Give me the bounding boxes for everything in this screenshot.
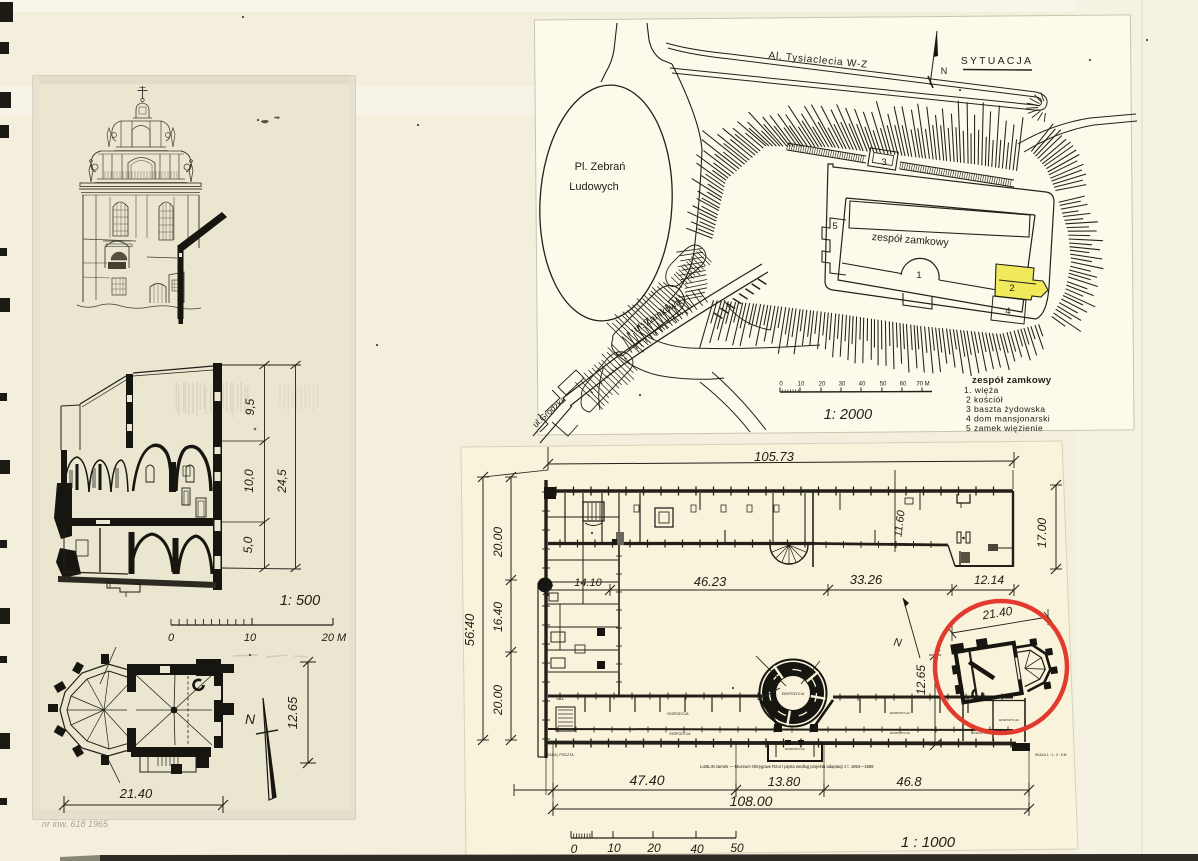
svg-text:EKSPOZYCJA: EKSPOZYCJA xyxy=(890,731,910,735)
svg-text:60: 60 xyxy=(900,382,907,388)
svg-text:3: 3 xyxy=(881,157,886,168)
svg-text:EKSPOZYCJA: EKSPOZYCJA xyxy=(785,747,805,751)
svg-text:1 : 1000: 1 : 1000 xyxy=(901,834,956,851)
svg-text:16.40: 16.40 xyxy=(491,602,505,632)
svg-text:20: 20 xyxy=(646,841,661,855)
svg-text:4 dom mansjonarski: 4 dom mansjonarski xyxy=(966,414,1050,424)
svg-text:EKSPOZYCJA: EKSPOZYCJA xyxy=(999,718,1019,722)
svg-text:17.00: 17.00 xyxy=(1035,518,1049,548)
svg-text:24,5: 24,5 xyxy=(275,469,289,494)
svg-text:46.23: 46.23 xyxy=(694,574,727,589)
svg-text:0: 0 xyxy=(571,842,578,856)
svg-text:56.40: 56.40 xyxy=(462,613,477,646)
svg-text:SKALA 1 : 1 : 2 : 5 M: SKALA 1 : 1 : 2 : 5 M xyxy=(1035,753,1067,757)
svg-text:EKSPOZYCJA: EKSPOZYCJA xyxy=(782,692,805,696)
svg-text:40: 40 xyxy=(859,382,866,388)
svg-text:1: 2000: 1: 2000 xyxy=(824,407,872,423)
svg-text:LUBLIN zamek — Muzeum Okręgowe: LUBLIN zamek — Muzeum Okręgowe Rzut I pi… xyxy=(700,764,874,769)
svg-text:SYTUACJA: SYTUACJA xyxy=(961,55,1033,67)
svg-text:47.40: 47.40 xyxy=(629,772,664,788)
svg-text:2: 2 xyxy=(1009,283,1014,294)
svg-text:3 baszta żydowska: 3 baszta żydowska xyxy=(966,404,1045,414)
svg-text:nr inw. 618 1965: nr inw. 618 1965 xyxy=(42,819,109,829)
svg-text:21.40: 21.40 xyxy=(119,786,153,801)
svg-text:70 M: 70 M xyxy=(916,382,929,388)
svg-text:1: 500: 1: 500 xyxy=(280,593,320,609)
svg-text:50: 50 xyxy=(880,382,887,388)
svg-text:10: 10 xyxy=(607,841,621,855)
svg-text:2 kościół: 2 kościół xyxy=(966,395,1003,405)
svg-text:30: 30 xyxy=(839,382,846,388)
svg-text:0: 0 xyxy=(168,632,175,644)
svg-text:5: 5 xyxy=(832,221,837,232)
svg-text:EKSPOZYCJA: EKSPOZYCJA xyxy=(669,732,691,736)
svg-text:KASA | POCZTA: KASA | POCZTA xyxy=(547,753,574,757)
svg-text:50: 50 xyxy=(730,841,744,855)
svg-text:12.65: 12.65 xyxy=(285,696,300,729)
svg-text:9,5: 9,5 xyxy=(243,398,257,415)
svg-text:20: 20 xyxy=(819,382,826,388)
svg-text:4: 4 xyxy=(1005,306,1010,317)
svg-text:Ludowych: Ludowych xyxy=(569,181,619,193)
svg-text:N: N xyxy=(245,711,256,727)
svg-text:EKSPOZYCJA: EKSPOZYCJA xyxy=(667,712,689,716)
svg-text:10: 10 xyxy=(244,632,257,644)
svg-text:20.00: 20.00 xyxy=(491,527,505,558)
svg-text:SALE: SALE xyxy=(556,697,563,701)
svg-text:1: 1 xyxy=(916,270,921,281)
svg-text:Pl. Zebrań: Pl. Zebrań xyxy=(575,161,626,173)
svg-text:13.80: 13.80 xyxy=(768,774,801,789)
svg-text:12.14: 12.14 xyxy=(974,573,1004,587)
svg-text:12.65: 12.65 xyxy=(914,665,928,695)
svg-text:N: N xyxy=(941,66,948,76)
svg-text:5 zamek więzienie: 5 zamek więzienie xyxy=(966,423,1043,433)
svg-text:5,0: 5,0 xyxy=(241,536,255,553)
svg-text:108.00: 108.00 xyxy=(730,793,773,809)
svg-text:14.10: 14.10 xyxy=(574,577,602,589)
svg-text:20.00: 20.00 xyxy=(491,685,505,716)
svg-text:46.8: 46.8 xyxy=(896,774,922,789)
svg-text:33.26: 33.26 xyxy=(850,572,883,587)
svg-text:1. więża: 1. więża xyxy=(964,385,999,395)
svg-text:40: 40 xyxy=(690,842,704,856)
svg-text:20 M: 20 M xyxy=(321,632,347,644)
svg-text:10: 10 xyxy=(798,382,805,388)
svg-text:EKSPOZYCJA: EKSPOZYCJA xyxy=(890,711,910,715)
svg-text:10,0: 10,0 xyxy=(242,469,256,493)
svg-text:105.73: 105.73 xyxy=(754,449,795,464)
